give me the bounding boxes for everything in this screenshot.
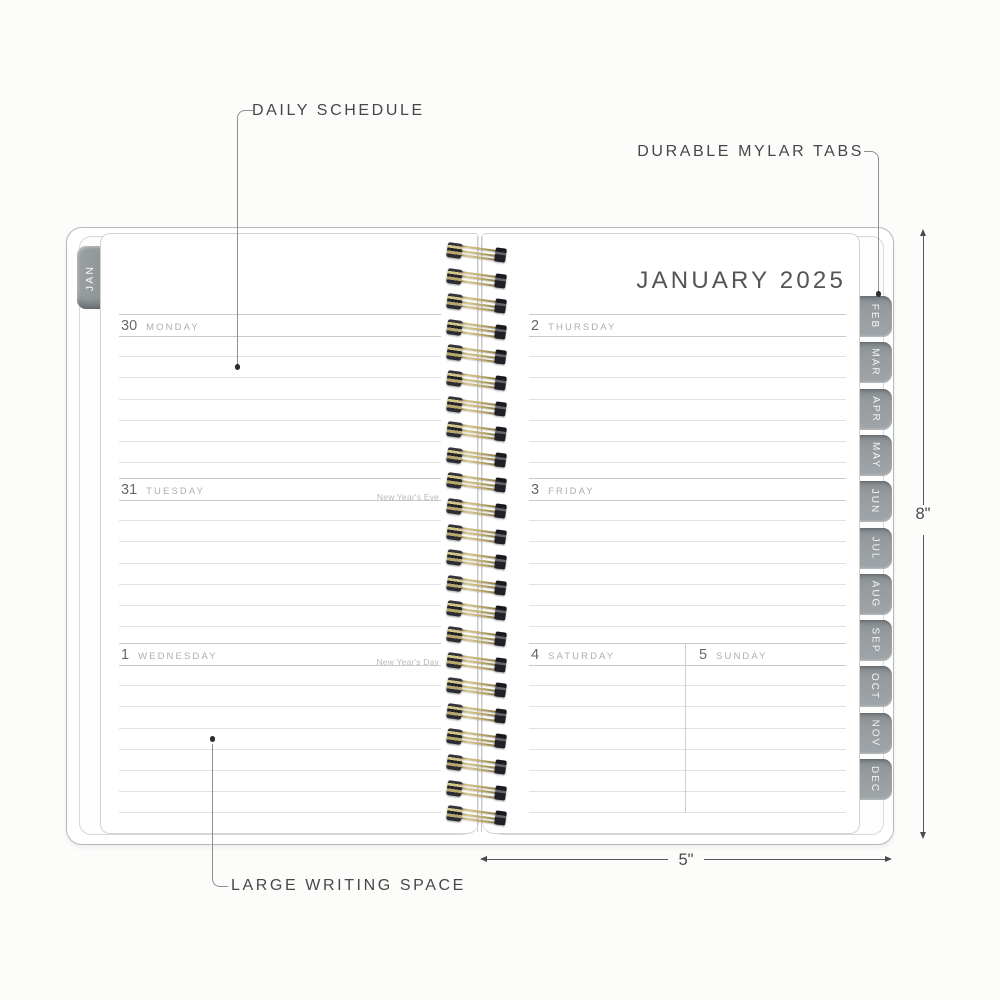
coil-clip-left xyxy=(446,549,463,566)
month-tab-label: NOV xyxy=(869,719,880,747)
ruled-line xyxy=(119,541,441,542)
spiral-coil xyxy=(447,549,507,567)
holiday-label: New Year's Eve xyxy=(377,486,439,508)
spiral-coil xyxy=(447,652,507,670)
month-tab-may: MAY xyxy=(858,435,892,476)
coil-clip-right xyxy=(494,759,507,774)
day-block: 30MONDAY xyxy=(119,314,441,486)
day-name: THURSDAY xyxy=(548,322,616,333)
ruled-line xyxy=(529,563,846,564)
leader-line-daily-schedule xyxy=(237,110,253,369)
spiral-coil xyxy=(447,421,507,439)
coil-clip-left xyxy=(446,370,463,387)
coil-clip-left xyxy=(446,293,463,310)
ruled-line xyxy=(119,749,441,750)
ruled-line xyxy=(119,399,441,400)
ruled-line xyxy=(119,356,441,357)
coil-clip-left xyxy=(446,780,463,797)
month-tab-label: JUL xyxy=(869,536,880,560)
callout-large-writing-space: LARGE WRITING SPACE xyxy=(231,877,466,895)
arrowhead-left-icon xyxy=(480,856,487,862)
coil-clip-right xyxy=(494,708,507,723)
day-name: TUESDAY xyxy=(146,486,205,497)
day-block: 3FRIDAY xyxy=(529,478,846,650)
month-tab-label: OCT xyxy=(869,673,880,700)
coil-clip-left xyxy=(446,805,463,822)
month-tab-label: APR xyxy=(870,396,881,423)
coil-clip-right xyxy=(494,478,507,493)
day-name: SUNDAY xyxy=(716,651,768,662)
coil-clip-right xyxy=(494,452,507,467)
ruled-line xyxy=(529,356,846,357)
coil-clip-right xyxy=(494,810,507,825)
ruled-line xyxy=(119,812,441,813)
date-number: 3 xyxy=(531,482,539,498)
ruled-line xyxy=(529,812,846,813)
callout-durable-mylar-tabs: DURABLE MYLAR TABS xyxy=(637,143,864,161)
date-number: 30 xyxy=(121,318,137,334)
month-tab-nov: NOV xyxy=(858,713,892,754)
ruled-line xyxy=(529,462,846,463)
ruled-line xyxy=(119,728,441,729)
month-tab-apr: APR xyxy=(858,389,892,430)
day-block: 1WEDNESDAYNew Year's Day xyxy=(119,643,441,815)
coil-clip-right xyxy=(494,503,507,518)
day-name: FRIDAY xyxy=(548,486,595,497)
weekend-divider-line xyxy=(685,643,686,813)
ruled-line xyxy=(529,706,846,707)
ruled-line xyxy=(529,584,846,585)
ruled-line xyxy=(119,520,441,521)
month-tab-jun: JUN xyxy=(858,481,892,522)
coil-clip-left xyxy=(446,472,463,489)
coil-clip-right xyxy=(494,426,507,441)
ruled-line xyxy=(119,584,441,585)
coil-clip-right xyxy=(494,580,507,595)
month-tab-sep: SEP xyxy=(858,620,892,661)
spiral-coil xyxy=(447,780,507,798)
coil-clip-left xyxy=(446,728,463,745)
day-name: WEDNESDAY xyxy=(138,651,217,662)
day-block: 31TUESDAYNew Year's Eve xyxy=(119,478,441,650)
ruled-line xyxy=(529,728,846,729)
ruled-line xyxy=(529,749,846,750)
coil-clip-left xyxy=(446,319,463,336)
spiral-coil xyxy=(447,344,507,362)
spiral-coil xyxy=(447,728,507,746)
ruled-line xyxy=(119,420,441,421)
coil-clip-right xyxy=(494,631,507,646)
spiral-coil xyxy=(447,370,507,388)
month-tab-label: AUG xyxy=(869,580,880,608)
coil-clip-left xyxy=(446,498,463,515)
ruled-line xyxy=(529,791,846,792)
weekend-day-header: 4SATURDAY xyxy=(529,644,615,665)
leader-dot-daily-schedule xyxy=(235,364,241,370)
weekend-block: 4SATURDAY5SUNDAY xyxy=(529,643,846,823)
ruled-line xyxy=(529,605,846,606)
ruled-line xyxy=(119,685,441,686)
coil-clip-left xyxy=(446,626,463,643)
coil-clip-right xyxy=(494,247,507,262)
month-tab-feb: FEB xyxy=(858,296,892,337)
coil-clip-right xyxy=(494,657,507,672)
coil-clip-right xyxy=(494,606,507,621)
day-header: 30MONDAY xyxy=(119,314,441,337)
arrowhead-down-icon xyxy=(920,832,926,839)
month-tab-label: FEB xyxy=(869,304,880,329)
day-header: 31TUESDAYNew Year's Eve xyxy=(119,478,441,501)
coil-clip-left xyxy=(446,677,463,694)
leader-line-mylar-tabs xyxy=(864,151,879,294)
spiral-coil xyxy=(447,498,507,516)
callout-daily-schedule: DAILY SCHEDULE xyxy=(252,102,425,120)
date-number: 31 xyxy=(121,482,137,498)
ruled-line xyxy=(119,605,441,606)
day-header: 3FRIDAY xyxy=(529,478,846,501)
coil-clip-left xyxy=(446,703,463,720)
day-header: 1WEDNESDAYNew Year's Day xyxy=(119,643,441,666)
holiday-label: New Year's Day xyxy=(376,651,439,673)
height-dimension-label: 8" xyxy=(910,505,936,524)
ruled-line xyxy=(119,770,441,771)
left-page: 30MONDAY31TUESDAYNew Year's Eve1WEDNESDA… xyxy=(100,233,479,834)
ruled-line xyxy=(529,770,846,771)
spiral-coil xyxy=(447,447,507,465)
coil-clip-right xyxy=(494,350,507,365)
month-tab-dec: DEC xyxy=(858,759,892,800)
leader-line-writing-space xyxy=(212,744,228,887)
tab-jan-label: JAN xyxy=(85,264,97,290)
coil-clip-left xyxy=(446,652,463,669)
coil-clip-left xyxy=(446,600,463,617)
spiral-coil xyxy=(447,754,507,772)
spiral-coil xyxy=(447,268,507,286)
spiral-coil xyxy=(447,626,507,644)
date-number: 2 xyxy=(531,318,539,334)
right-page-days: 2THURSDAY3FRIDAY4SATURDAY5SUNDAY xyxy=(483,234,859,833)
coil-clip-left xyxy=(446,524,463,541)
ruled-line xyxy=(119,441,441,442)
ruled-line xyxy=(529,541,846,542)
date-number: 4 xyxy=(531,647,539,663)
ruled-line xyxy=(529,441,846,442)
ruled-line xyxy=(529,520,846,521)
planner-product-image: DAILY SCHEDULE DURABLE MYLAR TABS LARGE … xyxy=(0,0,1000,1000)
coil-clip-right xyxy=(494,785,507,800)
month-tab-label: JUN xyxy=(869,489,880,514)
coil-clip-left xyxy=(446,268,463,285)
ruled-line xyxy=(119,791,441,792)
spiral-coil xyxy=(447,242,507,260)
weekend-day-header: 5SUNDAY xyxy=(697,644,768,665)
spiral-coil xyxy=(447,319,507,337)
coil-clip-left xyxy=(446,447,463,464)
coil-clip-left xyxy=(446,242,463,259)
coil-clip-right xyxy=(494,734,507,749)
month-title: JANUARY 2025 xyxy=(636,267,846,295)
month-tab-mar: MAR xyxy=(858,342,892,383)
coil-clip-right xyxy=(494,401,507,416)
right-page: JANUARY 2025 2THURSDAY3FRIDAY4SATURDAY5S… xyxy=(482,233,860,834)
day-header: 4SATURDAY5SUNDAY xyxy=(529,643,846,666)
day-name: MONDAY xyxy=(146,322,200,333)
spiral-coil xyxy=(447,677,507,695)
arrowhead-right-icon xyxy=(885,856,892,862)
month-tab-oct: OCT xyxy=(858,666,892,707)
month-tab-label: MAR xyxy=(869,349,880,377)
spiral-coil xyxy=(447,472,507,490)
ruled-line xyxy=(529,399,846,400)
spiral-coil xyxy=(447,600,507,618)
month-tab-label: DEC xyxy=(870,766,881,793)
coil-clip-right xyxy=(494,298,507,313)
width-dimension-label: 5" xyxy=(666,851,706,870)
leader-dot-mylar-tabs xyxy=(876,291,882,297)
coil-clip-left xyxy=(446,421,463,438)
coil-clip-right xyxy=(494,273,507,288)
leader-dot-writing-space xyxy=(210,736,216,742)
month-tab-label: MAY xyxy=(870,442,881,469)
day-header: 2THURSDAY xyxy=(529,314,846,337)
ruled-line xyxy=(119,706,441,707)
spiral-coil xyxy=(447,396,507,414)
height-dimension: 8" xyxy=(919,229,927,839)
coil-clip-left xyxy=(446,396,463,413)
spiral-coil xyxy=(447,703,507,721)
width-dimension: 5" xyxy=(480,851,892,869)
coil-clip-left xyxy=(446,754,463,771)
coil-clip-right xyxy=(494,324,507,339)
month-tab-label: SEP xyxy=(869,628,880,654)
coil-clip-right xyxy=(494,682,507,697)
coil-clip-right xyxy=(494,529,507,544)
coil-clip-left xyxy=(446,575,463,592)
spiral-coil xyxy=(447,575,507,593)
coil-clip-left xyxy=(446,344,463,361)
ruled-line xyxy=(119,563,441,564)
coil-clip-right xyxy=(494,375,507,390)
ruled-line xyxy=(119,626,441,627)
ruled-line xyxy=(529,377,846,378)
date-number: 1 xyxy=(121,647,129,663)
spiral-coil xyxy=(447,805,507,823)
coil-clip-right xyxy=(494,554,507,569)
spiral-coil xyxy=(447,524,507,542)
ruled-line xyxy=(529,685,846,686)
ruled-line xyxy=(119,462,441,463)
day-name: SATURDAY xyxy=(548,651,615,662)
date-number: 5 xyxy=(699,647,707,663)
spiral-coil xyxy=(447,293,507,311)
left-page-days: 30MONDAY31TUESDAYNew Year's Eve1WEDNESDA… xyxy=(101,234,478,833)
month-tab-aug: AUG xyxy=(858,574,892,615)
day-block: 2THURSDAY xyxy=(529,314,846,486)
month-tab-jul: JUL xyxy=(858,528,892,569)
ruled-line xyxy=(119,377,441,378)
ruled-line xyxy=(529,420,846,421)
ruled-line xyxy=(529,626,846,627)
